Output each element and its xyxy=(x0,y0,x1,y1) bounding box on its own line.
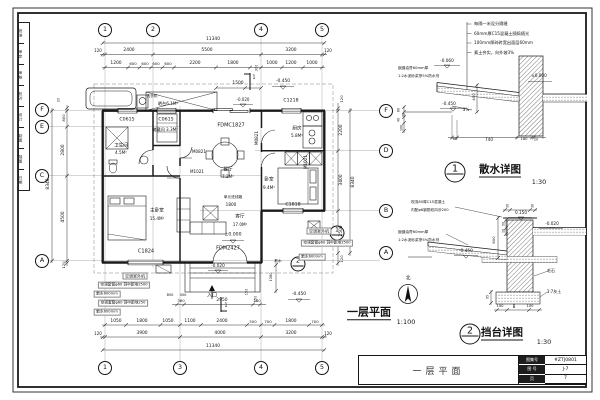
bubble-text: D xyxy=(384,148,389,154)
bubble-text: 5 xyxy=(320,27,324,33)
bubble-text: 4 xyxy=(259,27,263,33)
dim-label: 120 xyxy=(340,255,344,262)
grid-bubble: 5 xyxy=(315,361,329,375)
note-label: 空调室外机 xyxy=(123,273,148,280)
bubble-text: C xyxy=(40,173,44,179)
level-label: -0.020 xyxy=(237,98,250,102)
grid-bubble: 1 xyxy=(98,23,112,37)
dim-label: 450 xyxy=(180,294,187,298)
title-label: 散水详图 xyxy=(479,165,521,178)
bubble-text: 1 xyxy=(103,365,107,371)
dim-label: 1100 xyxy=(184,320,195,324)
title-label: 1:30 xyxy=(537,339,552,346)
signature-cell: 描图 xyxy=(19,149,24,170)
signature-cell: 设计 xyxy=(19,107,24,128)
grid-bubble: A xyxy=(35,254,49,268)
level-label: -0.020 xyxy=(211,264,225,268)
bubble-text: 4 xyxy=(259,365,263,371)
signature-strip: 批准审定审核校对设计制图描图日期 xyxy=(18,22,30,191)
dim-label: 1000 xyxy=(306,62,317,66)
grid-bubble: 4 xyxy=(254,23,268,37)
dim-label: 100 xyxy=(526,305,533,309)
title-label: 挡台详图 xyxy=(481,328,523,341)
title-block-field-value: #ZTJ0801 xyxy=(545,356,586,365)
title-label: 1:30 xyxy=(532,179,547,186)
dim-label: 400 xyxy=(472,93,476,100)
bubble-text: 5 xyxy=(320,365,324,371)
opening-label: C0615 xyxy=(119,119,134,124)
grid-bubble: 3 xyxy=(173,361,187,375)
bubble-text: F xyxy=(384,108,388,114)
level-label: 0.150 xyxy=(515,211,527,215)
level-label: -0.450 xyxy=(442,102,456,106)
dim-label: 1200 xyxy=(110,62,121,66)
signature-cell: 制图 xyxy=(19,128,24,149)
opening-label: M1021 xyxy=(304,155,308,169)
dim-label: 120 xyxy=(62,261,66,268)
dim-label: 150 xyxy=(245,289,248,295)
signature-cell: 日期 xyxy=(19,170,24,190)
dim-label: 120 xyxy=(340,95,344,102)
dim-label: 20 xyxy=(534,138,538,141)
opening-label: C0615 xyxy=(158,119,173,124)
title-label: 一层平面 xyxy=(347,306,391,320)
dim-label: 1050 xyxy=(110,320,121,324)
dim-label: 8340 xyxy=(47,178,51,189)
dim-label: 1800 xyxy=(285,320,296,324)
dim-label: 600 xyxy=(492,236,496,243)
dim-label: 1 xyxy=(224,304,227,309)
dim-label: 300 xyxy=(255,65,258,71)
grid-bubble: F xyxy=(35,103,49,117)
title-block-drawing-title: 一层平面 xyxy=(359,356,519,384)
dim-label: 800 xyxy=(62,114,66,121)
bubble-text: B xyxy=(384,208,388,214)
room-label: 厨房 xyxy=(292,128,301,133)
dim-label: 100 xyxy=(496,305,503,309)
note-label: 现浇80厚C15混凝土 xyxy=(411,201,445,205)
title-block-field-value: J-7 xyxy=(545,365,586,374)
dim-label: 30 xyxy=(506,204,509,208)
dim-label: 700 xyxy=(311,320,318,324)
level-label: -0.450 xyxy=(459,249,473,253)
dim-label: 40 xyxy=(397,118,400,122)
grid-bubble: B xyxy=(379,204,393,218)
note-label: 素土夯实，向外坡3% xyxy=(474,50,514,54)
bubble-text: 2 xyxy=(467,326,473,336)
note-label: 1:2水泥砂浆掺5%防水剂 xyxy=(398,75,439,79)
title-block: 一层平面 图集号 #ZTJ0801 图 号 J-7 页 7 xyxy=(358,355,587,385)
grid-bubble: A xyxy=(379,246,393,260)
dim-label: 4000 xyxy=(214,332,225,336)
room-label: 17.0M² xyxy=(233,223,248,227)
dim-label: 3900 xyxy=(136,332,147,336)
dim-label: 1050 xyxy=(162,320,173,324)
dim-label: 740 xyxy=(485,138,493,142)
room-label: 卧室 xyxy=(264,179,273,184)
drawing-sheet: 批准审定审核校对设计制图描图日期 12451345FECAFDBA1212 11… xyxy=(0,0,600,400)
title-block-field-value: 7 xyxy=(545,375,586,384)
note-label: 散水600mm xyxy=(94,291,121,298)
dim-label: 500 xyxy=(249,320,256,324)
dim-label: 11340 xyxy=(206,38,220,42)
note-label: 空调套管φ60 洞中距地2500 xyxy=(98,282,150,289)
dim-label: 3400 xyxy=(340,174,344,185)
dim-label: 95 xyxy=(486,295,489,299)
dim-label: 180 xyxy=(520,138,527,142)
dim-label: B xyxy=(513,305,516,309)
dim-label: 600 xyxy=(152,62,159,66)
dim-label: 600 xyxy=(129,62,136,66)
dim-label: 20 xyxy=(57,98,60,102)
bubble-text: 3 xyxy=(178,365,182,371)
dim-label: 20 xyxy=(402,112,405,116)
note-label: 入口 xyxy=(207,294,217,299)
note-label: 嵌缝油膏60mm厚 xyxy=(398,231,428,235)
grid-bubble: 1 xyxy=(98,361,112,375)
dim-label: 60 xyxy=(397,108,400,112)
level-label: ±0.000 xyxy=(531,74,547,78)
dim-label: 3200 xyxy=(285,332,296,336)
dim-label: 360 xyxy=(177,299,184,303)
note-label: 3:7灰土 xyxy=(547,290,561,294)
bubble-text: 1 xyxy=(103,27,107,33)
level-label: -0.020 xyxy=(545,222,559,226)
opening-label: FDMC1827 xyxy=(217,124,244,129)
title-block-field-label: 图 号 xyxy=(519,365,545,374)
dim-label: 120 xyxy=(94,332,102,336)
dim-label: 1360 xyxy=(270,272,274,281)
opening-label: M1021 xyxy=(190,170,204,174)
dim-label: 150 xyxy=(254,296,257,302)
dim-label: 1800 xyxy=(136,320,147,324)
dim-label: 1000 xyxy=(266,62,277,66)
dim-label: 850 xyxy=(167,294,174,298)
note-label: 1:2水泥砂浆掺5%防水剂 xyxy=(398,239,439,243)
dim-label: 1800 xyxy=(226,203,237,207)
dim-label: 2200 xyxy=(340,124,344,135)
note-label: 空调套管φ60 洞中距地2500 xyxy=(301,240,353,247)
note-label: 内配φ6钢筋双向@200 xyxy=(411,209,449,213)
bubble-text: E xyxy=(40,124,44,130)
dim-label: 100 xyxy=(400,124,403,130)
note-label: 单元进线箱 xyxy=(224,196,242,200)
title-label: 北 xyxy=(405,277,410,282)
grid-bubble: D xyxy=(379,144,393,158)
dim-label: 1800 xyxy=(227,62,238,66)
room-label: 7.2M² xyxy=(222,175,234,179)
grid-bubble: F xyxy=(379,104,393,118)
note-label: 嵌缝油膏60mm厚 xyxy=(398,67,428,71)
dim-label: 120 xyxy=(324,49,332,53)
dim-label: 50 xyxy=(502,222,505,226)
opening-label: C1824 xyxy=(138,250,154,255)
note-label: 毛石 xyxy=(547,269,555,273)
dim-label: 60 xyxy=(453,138,458,142)
bubble-text: A xyxy=(384,250,388,256)
dim-label: 700 xyxy=(264,320,271,324)
room-label: 主卧室 xyxy=(150,210,164,215)
note-label: 每隔一米设分隔缝 xyxy=(474,22,508,26)
room-label: 卫生间 xyxy=(114,145,128,150)
grid-bubble: E xyxy=(35,120,49,134)
opening-label: C1218 xyxy=(283,100,298,105)
note-label: 空调室外机 xyxy=(307,228,332,235)
detail-number-bubble: 1 xyxy=(445,162,466,183)
room-label: 储藏间 3.3M² xyxy=(152,128,178,132)
dim-label: 1 xyxy=(252,76,255,81)
grid-bubble: 5 xyxy=(315,23,329,37)
title-label: 1:100 xyxy=(397,319,416,326)
dim-label: 600 xyxy=(164,62,171,66)
note-label: 洗衣机 xyxy=(146,95,157,99)
dim-label: 120 xyxy=(324,332,332,336)
title-block-fields: 图集号 #ZTJ0801 图 号 J-7 页 7 xyxy=(519,356,586,384)
title-block-field-label: 图集号 xyxy=(519,356,545,365)
dim-label: 10 xyxy=(502,229,505,233)
level-label: -0.450 xyxy=(292,293,306,297)
title-block-field-label: 页 xyxy=(519,375,545,384)
room-label: 4.5M² xyxy=(115,151,127,155)
signature-cell: 审定 xyxy=(19,44,24,65)
dim-label: 4500 xyxy=(62,211,66,222)
level-label: -0.450 xyxy=(276,80,290,84)
room-label: 晒台6.1M² xyxy=(158,102,178,106)
dim-label: 2400 xyxy=(123,49,134,53)
dim-label: 1500 xyxy=(232,82,243,86)
note-label: 100mm厚碎砖宽出面层60mm xyxy=(474,41,533,45)
room-label: 客厅 xyxy=(235,216,244,221)
note-label: 散水600mm xyxy=(94,309,121,316)
bubble-text: A xyxy=(40,258,44,264)
opening-label: FDM2427 xyxy=(216,247,240,252)
room-label: 9.4M² xyxy=(263,186,275,190)
note-label: 空调套管φ60 洞中距地250 xyxy=(98,300,148,307)
bubble-text: 2 xyxy=(151,27,155,33)
dim-label: 1200 xyxy=(285,62,296,66)
dim-label: 3200 xyxy=(285,49,296,53)
bubble-text: F xyxy=(40,107,44,113)
dim-label: 2400 xyxy=(216,320,227,324)
room-label: 5.8M² xyxy=(291,134,303,138)
signature-cell: 批准 xyxy=(19,23,24,44)
note-label: 散水600mm xyxy=(299,254,326,261)
dim-label: 5500 xyxy=(201,49,212,53)
dim-label: 30 xyxy=(531,204,534,208)
signature-cell: 审核 xyxy=(19,65,24,86)
dim-label: 600 xyxy=(141,62,148,66)
level-label: ±0.000 xyxy=(224,234,241,239)
note-label: 60mm厚C15混凝土随捣随光 xyxy=(474,31,529,35)
dim-label: 2500 xyxy=(340,225,344,236)
dim-label: 2200 xyxy=(189,62,200,66)
bubble-text: 1 xyxy=(452,164,458,174)
opening-label: M0821 xyxy=(192,150,206,154)
grid-bubble: 2 xyxy=(146,23,160,37)
dim-label: 120 xyxy=(94,49,102,53)
dim-label: 3% xyxy=(463,108,470,112)
room-label: 餐厅 xyxy=(223,169,232,174)
dim-label: 11340 xyxy=(206,345,220,349)
grid-bubble: 4 xyxy=(254,361,268,375)
room-label: 15.4M² xyxy=(150,217,165,221)
signature-cell: 校对 xyxy=(19,86,24,107)
opening-label: M0821 xyxy=(255,131,259,145)
dim-label: 8340 xyxy=(352,176,356,187)
note-label: 散水 xyxy=(274,260,281,264)
detail-number-bubble: 2 xyxy=(460,324,481,345)
level-label: -0.060 xyxy=(440,59,454,63)
opening-label: C1818 xyxy=(285,204,300,209)
dim-label: 2800 xyxy=(62,144,66,155)
